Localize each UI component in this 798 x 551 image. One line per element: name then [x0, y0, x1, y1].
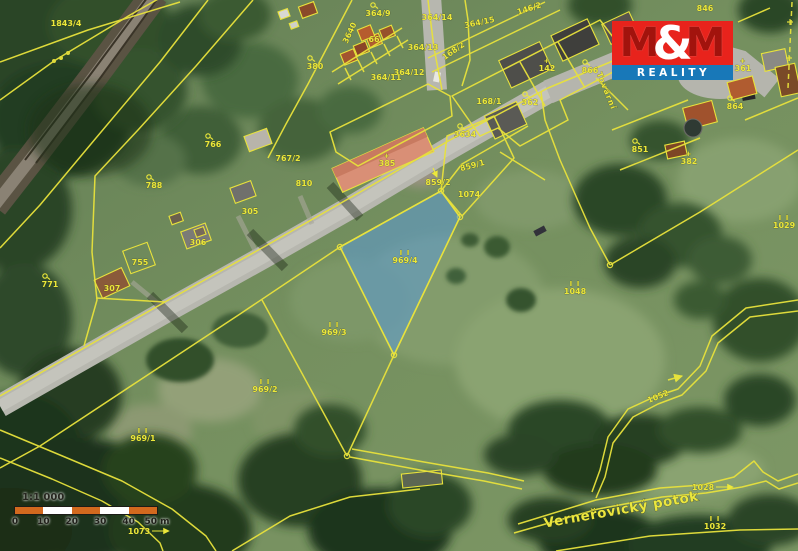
svg-text:I I: I I	[329, 321, 340, 329]
scale-tick: 0	[12, 517, 18, 527]
parcel-label: 767/2	[275, 154, 300, 163]
svg-text:364/9: 364/9	[365, 9, 391, 18]
svg-text:66: 66	[368, 35, 380, 44]
svg-text:380: 380	[307, 62, 324, 71]
svg-text:1048: 1048	[564, 287, 587, 296]
svg-text:969/3: 969/3	[321, 328, 346, 337]
scale-segment	[15, 507, 43, 514]
svg-text:969/2: 969/2	[252, 385, 277, 394]
scale-tick: 10	[37, 517, 50, 527]
svg-text:382: 382	[681, 157, 698, 166]
parcel-label: 306	[190, 238, 207, 247]
scale-tick: 50 m	[144, 517, 169, 527]
svg-text:969/4: 969/4	[392, 256, 418, 265]
scale-segment	[129, 507, 157, 514]
parcel-label: 810	[296, 179, 313, 188]
svg-text:859/2: 859/2	[425, 178, 450, 187]
parcel-label: 364/14	[422, 13, 453, 22]
svg-text:385: 385	[379, 159, 396, 168]
svg-text:771: 771	[42, 280, 59, 289]
svg-text:3634: 3634	[454, 130, 477, 139]
scale-ratio-label: 1:1 000	[22, 492, 184, 503]
svg-text:364/13: 364/13	[408, 43, 439, 52]
svg-text:1843/4: 1843/4	[51, 19, 82, 28]
svg-text:I I: I I	[260, 378, 271, 386]
scale-bar: 1:1 000 01020304050 m	[14, 492, 184, 529]
cadastral-map[interactable]: 1843/4766788767/281030530630775577138036…	[0, 0, 798, 551]
svg-text:361: 361	[735, 64, 752, 73]
svg-text:767/2: 767/2	[275, 154, 300, 163]
svg-text:969/1: 969/1	[130, 434, 156, 443]
parcel-label: 364/13	[408, 43, 439, 52]
parcel-label: 1074	[458, 190, 481, 199]
svg-text:I I: I I	[400, 249, 411, 257]
scale-segment	[72, 507, 100, 514]
svg-text:168/1: 168/1	[476, 97, 502, 106]
svg-text:364/12: 364/12	[394, 68, 425, 77]
parcel-label: 364/12	[394, 68, 425, 77]
map-stage: 1843/4766788767/281030530630775577138036…	[0, 0, 798, 551]
parcel-label: 305	[242, 207, 259, 216]
svg-text:+: +	[544, 57, 551, 65]
svg-text:I I: I I	[710, 515, 721, 523]
logo-ampersand: &	[652, 21, 692, 65]
svg-text:306: 306	[190, 238, 207, 247]
scale-tick: 30	[94, 517, 107, 527]
svg-text:1032: 1032	[704, 522, 726, 531]
svg-text:307: 307	[104, 284, 121, 293]
svg-text:I I: I I	[570, 280, 581, 288]
scale-tick: 40	[122, 517, 135, 527]
svg-text:864: 864	[727, 102, 744, 111]
svg-text:+: +	[740, 57, 747, 65]
parcel-label: 66	[368, 35, 380, 44]
svg-text:788: 788	[146, 181, 163, 190]
scale-bar-segments	[14, 506, 158, 515]
scale-tick: 20	[66, 517, 79, 527]
scale-segment	[43, 507, 71, 514]
svg-text:364/14: 364/14	[422, 13, 453, 22]
svg-text:142: 142	[539, 64, 556, 73]
svg-text:1029: 1029	[773, 221, 796, 230]
parcel-label: 755	[132, 258, 149, 267]
scale-segment	[100, 507, 128, 514]
parcel-label: 168/1	[476, 97, 502, 106]
svg-text:I I: I I	[138, 427, 149, 435]
svg-text:362: 362	[522, 98, 539, 107]
logo-mm: M & M	[612, 21, 733, 65]
svg-text:+: +	[686, 150, 693, 158]
svg-text:846: 846	[697, 4, 714, 13]
svg-text:+: +	[384, 152, 391, 160]
parcel-label: 1843/4	[51, 19, 82, 28]
svg-text:851: 851	[632, 145, 649, 154]
parcel-label: 846	[697, 4, 714, 13]
svg-text:755: 755	[132, 258, 149, 267]
parcel-label: 307	[104, 284, 121, 293]
svg-text:I I: I I	[779, 214, 790, 222]
svg-text:305: 305	[242, 207, 259, 216]
svg-text:810: 810	[296, 179, 313, 188]
mm-reality-logo: M & M REALITY	[612, 21, 733, 80]
scale-tick-labels: 01020304050 m	[14, 517, 184, 529]
logo-reality: REALITY	[612, 65, 733, 80]
svg-text:766: 766	[205, 140, 222, 149]
svg-text:1074: 1074	[458, 190, 481, 199]
